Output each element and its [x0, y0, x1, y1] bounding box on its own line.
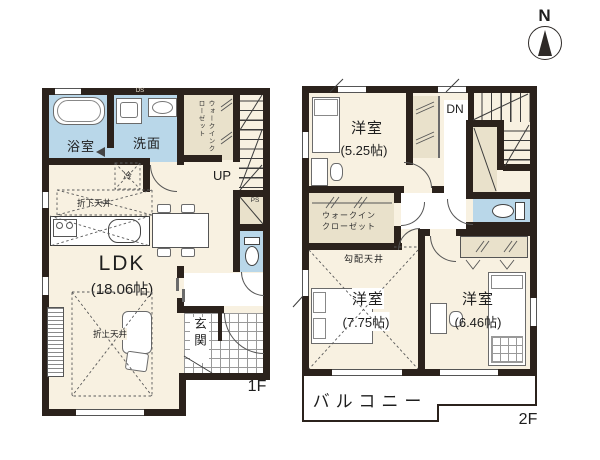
ldk-label: LDK — [99, 252, 146, 276]
wic-2f-label: ウォークイン クローゼット — [322, 210, 376, 232]
wall-segment — [179, 375, 186, 416]
closet-2f-floor — [412, 96, 438, 158]
bed-pillow — [314, 99, 338, 116]
bedroom3-label: 洋室 — [462, 288, 494, 309]
lowered-ceiling-label: 折下天井 — [77, 197, 111, 209]
wall-segment — [394, 193, 401, 203]
bathroom-label: 浴室 — [67, 136, 95, 155]
wall-segment — [233, 231, 240, 272]
toilet-tank — [515, 202, 525, 220]
wall-segment — [233, 224, 270, 231]
chair — [330, 163, 343, 181]
ottoman — [125, 351, 149, 373]
window — [302, 270, 309, 296]
wall-segment — [177, 266, 184, 278]
raised-ceiling-label: 折上天井 — [93, 328, 127, 340]
desk — [311, 158, 328, 186]
window — [42, 277, 49, 295]
wall-segment — [302, 186, 404, 193]
compass: N — [520, 4, 580, 66]
bedroom2-area: (7.75帖) — [343, 312, 390, 331]
genkan-label: 玄関 — [190, 317, 209, 363]
folding-door-icon — [96, 147, 105, 157]
dining-chair — [181, 204, 195, 213]
wall-segment — [466, 192, 537, 199]
stairs-1f — [239, 92, 263, 192]
bedroom1-area: (5.25帖) — [341, 140, 388, 159]
wall-segment — [503, 164, 537, 171]
north-arrow-icon — [538, 30, 552, 56]
tv-board — [47, 307, 64, 377]
bathtub-inner — [57, 100, 101, 122]
kitchen-sink — [108, 219, 141, 243]
stairs-2f-lower — [503, 122, 530, 170]
wic-1f-label: ウォークインクローゼット — [195, 100, 215, 158]
compass-north-label: N — [538, 6, 551, 26]
wall-segment — [143, 158, 150, 192]
window — [440, 369, 498, 376]
ldk-area-label: (18.06帖) — [91, 278, 154, 299]
wall-segment — [456, 229, 537, 236]
wall-segment — [497, 122, 504, 170]
wic-2f-line2: クローゼット — [322, 221, 376, 232]
desk — [430, 303, 447, 334]
floor2-label: 2F — [519, 411, 538, 429]
dining-chair — [181, 248, 195, 257]
wall-segment — [466, 122, 473, 198]
bed-pillow — [313, 292, 326, 313]
bed-pillow — [313, 318, 326, 339]
balcony — [437, 376, 537, 406]
bedroom1-label: 洋室 — [351, 117, 383, 138]
wall-segment — [234, 155, 240, 162]
window — [332, 369, 402, 376]
window — [338, 86, 366, 93]
bed-pillow — [491, 275, 523, 289]
sliding-door — [182, 289, 185, 302]
wall-segment — [406, 93, 413, 165]
wall-segment — [236, 190, 270, 197]
washing-machine-drum — [120, 102, 138, 118]
window — [76, 409, 144, 416]
window — [302, 132, 309, 158]
floor1-label: 1F — [248, 378, 267, 396]
bedroom2-label: 洋室 — [352, 288, 384, 309]
wall-segment — [468, 93, 474, 122]
sloped-ceiling-label: 勾配天井 — [344, 252, 384, 265]
stove-burner — [66, 222, 73, 229]
ps-label: PS — [251, 197, 260, 204]
bedroom3-area: (6.46帖) — [455, 312, 502, 331]
vanity-basin — [152, 101, 173, 114]
window — [530, 298, 537, 326]
ldk-floor-extension — [46, 372, 182, 412]
wall-segment — [302, 86, 309, 376]
floorplan-canvas: N — [0, 0, 600, 460]
wall-segment — [233, 92, 240, 162]
wall-segment — [107, 95, 114, 148]
wall-segment — [302, 243, 402, 250]
toilet-bowl — [492, 204, 514, 218]
stairs-2f-upper — [473, 93, 530, 122]
fridge-label: 冷 — [123, 169, 133, 182]
up-label: UP — [213, 168, 231, 183]
washroom-label: 洗面 — [133, 133, 161, 152]
window — [438, 86, 466, 93]
wall-segment — [418, 229, 425, 369]
closet-edge — [438, 96, 440, 158]
wall-segment — [466, 222, 537, 229]
closet-646-floor — [460, 236, 528, 258]
dining-table — [152, 213, 209, 248]
wall-segment — [263, 88, 270, 380]
wall-segment — [177, 306, 224, 313]
wall-segment — [218, 313, 222, 341]
storage-2f-floor — [473, 127, 497, 192]
wall-segment — [432, 186, 444, 193]
bed-foot — [491, 336, 523, 363]
wic-1f-line1: ウォークイン — [207, 100, 214, 145]
dining-chair — [157, 248, 171, 257]
dining-chair — [157, 204, 171, 213]
wall-segment — [46, 158, 150, 165]
balcony-label: バルコニー — [313, 387, 428, 412]
wic-2f-line1: ウォークイン — [322, 210, 376, 221]
stove-burner — [56, 222, 63, 229]
dn-label: DN — [446, 102, 463, 116]
sliding-door — [176, 278, 179, 291]
toilet-bowl — [245, 246, 259, 266]
toilet-tank — [244, 237, 260, 245]
window — [55, 88, 81, 95]
window — [42, 192, 49, 208]
ds-label: DS — [136, 88, 144, 94]
